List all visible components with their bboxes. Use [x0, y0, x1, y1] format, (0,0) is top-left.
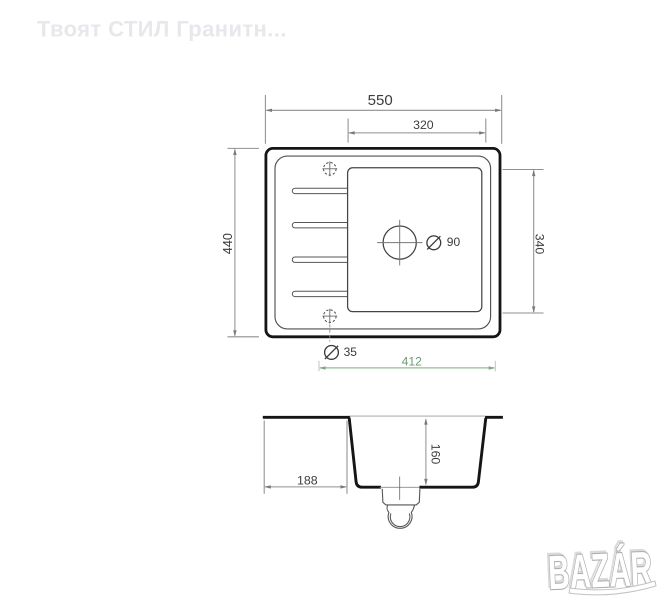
svg-text:90: 90: [447, 235, 461, 249]
svg-text:340: 340: [533, 234, 547, 255]
svg-text:440: 440: [221, 233, 235, 254]
svg-text:550: 550: [368, 92, 393, 109]
svg-text:412: 412: [402, 354, 423, 368]
svg-text:Твоят СТИЛ Гранитн...: Твоят СТИЛ Гранитн...: [37, 17, 287, 42]
svg-text:320: 320: [413, 118, 434, 132]
svg-text:160: 160: [429, 444, 443, 465]
svg-text:188: 188: [297, 473, 318, 487]
svg-text:35: 35: [344, 345, 358, 359]
